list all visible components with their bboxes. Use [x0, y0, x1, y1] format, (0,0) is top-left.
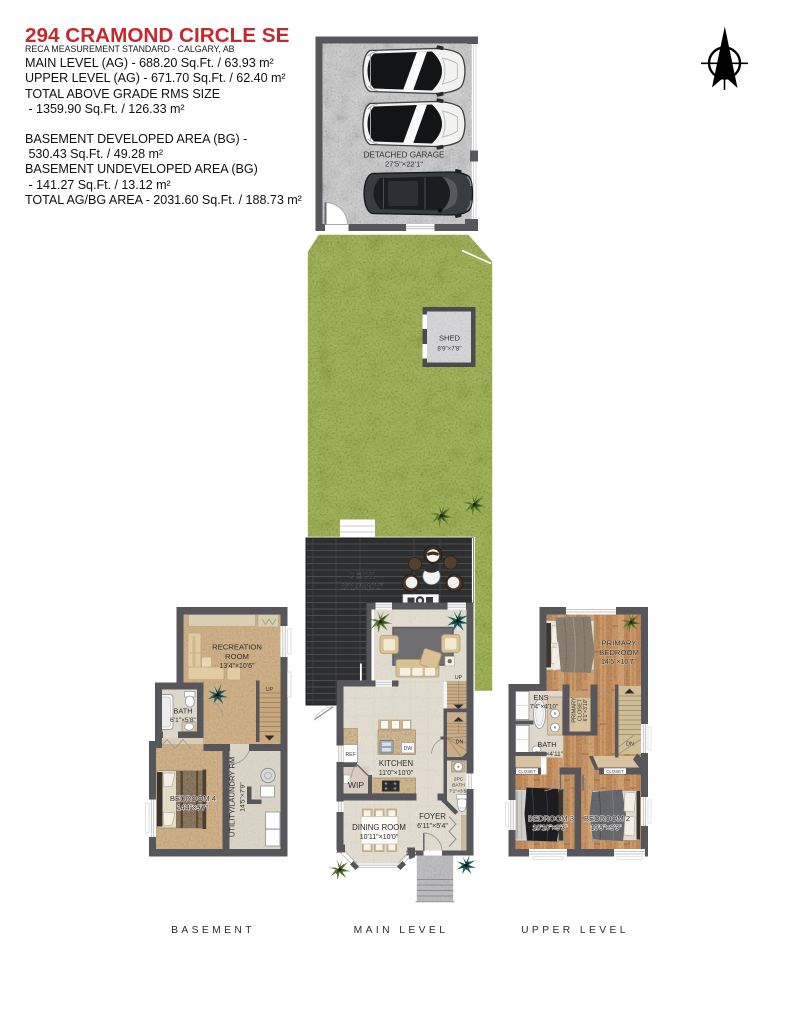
svg-text:7'4"×4'10": 7'4"×4'10": [530, 704, 558, 711]
svg-text:DINING ROOM: DINING ROOM: [352, 823, 406, 832]
svg-text:FOYER: FOYER: [419, 812, 446, 821]
svg-text:BEDROOM 4: BEDROOM 4: [170, 794, 217, 803]
svg-text:CLOSET: CLOSET: [518, 769, 536, 774]
svg-text:UP: UP: [455, 675, 463, 681]
svg-text:BATH: BATH: [173, 707, 192, 716]
svg-text:BASEMENT: BASEMENT: [171, 925, 255, 936]
svg-text:BEDROOM: BEDROOM: [599, 648, 639, 657]
svg-text:ROOM: ROOM: [225, 652, 249, 661]
svg-text:UPPER LEVEL: UPPER LEVEL: [521, 925, 629, 936]
svg-text:DECK: DECK: [349, 571, 375, 581]
svg-text:SHED: SHED: [439, 334, 461, 343]
svg-text:6'1"×3'10": 6'1"×3'10": [583, 698, 589, 721]
svg-text:MAIN LEVEL: MAIN LEVEL: [354, 925, 449, 936]
svg-text:6'1"×5'8": 6'1"×5'8": [170, 717, 196, 724]
svg-text:BATH: BATH: [537, 740, 556, 749]
svg-text:DETACHED GARAGE: DETACHED GARAGE: [364, 151, 445, 160]
svg-text:UP: UP: [266, 687, 274, 693]
svg-text:ENS: ENS: [533, 693, 548, 702]
svg-text:BEDROOM 2: BEDROOM 2: [584, 814, 630, 823]
svg-text:27'5"×22'1": 27'5"×22'1": [385, 160, 423, 169]
svg-text:14'5"×10'7": 14'5"×10'7": [601, 659, 637, 666]
svg-text:2PC: 2PC: [454, 777, 464, 783]
svg-text:DN: DN: [456, 740, 464, 746]
svg-text:PRIMARY: PRIMARY: [602, 639, 637, 648]
svg-text:8'9"×7'8": 8'9"×7'8": [437, 346, 461, 353]
svg-text:14'5"×7'9": 14'5"×7'9": [240, 782, 247, 812]
svg-text:23'10"×10'4": 23'10"×10'4": [341, 582, 384, 591]
svg-text:DW: DW: [404, 746, 413, 752]
svg-text:10'10"×9'3": 10'10"×9'3": [532, 825, 568, 832]
svg-text:KITCHEN: KITCHEN: [379, 759, 413, 768]
svg-text:7'1"×3'5": 7'1"×3'5": [449, 789, 468, 795]
svg-text:10'11"×10'0": 10'11"×10'0": [360, 834, 399, 841]
svg-text:CLOSET: CLOSET: [606, 769, 624, 774]
svg-text:10'9"×9'3": 10'9"×9'3": [590, 825, 622, 832]
svg-text:BEDROOM 3: BEDROOM 3: [528, 814, 574, 823]
svg-text:11'0"×10'0": 11'0"×10'0": [379, 770, 414, 777]
svg-text:WIP: WIP: [348, 780, 364, 790]
svg-text:DN: DN: [626, 742, 634, 748]
svg-text:14'4"×9'7": 14'4"×9'7": [177, 805, 209, 812]
svg-text:REF: REF: [346, 752, 356, 758]
svg-text:13'4"×10'6": 13'4"×10'6": [219, 663, 255, 670]
svg-text:6'11"×5'4": 6'11"×5'4": [417, 823, 448, 830]
svg-text:RECREATION: RECREATION: [212, 643, 262, 652]
svg-text:BATH: BATH: [452, 783, 465, 789]
